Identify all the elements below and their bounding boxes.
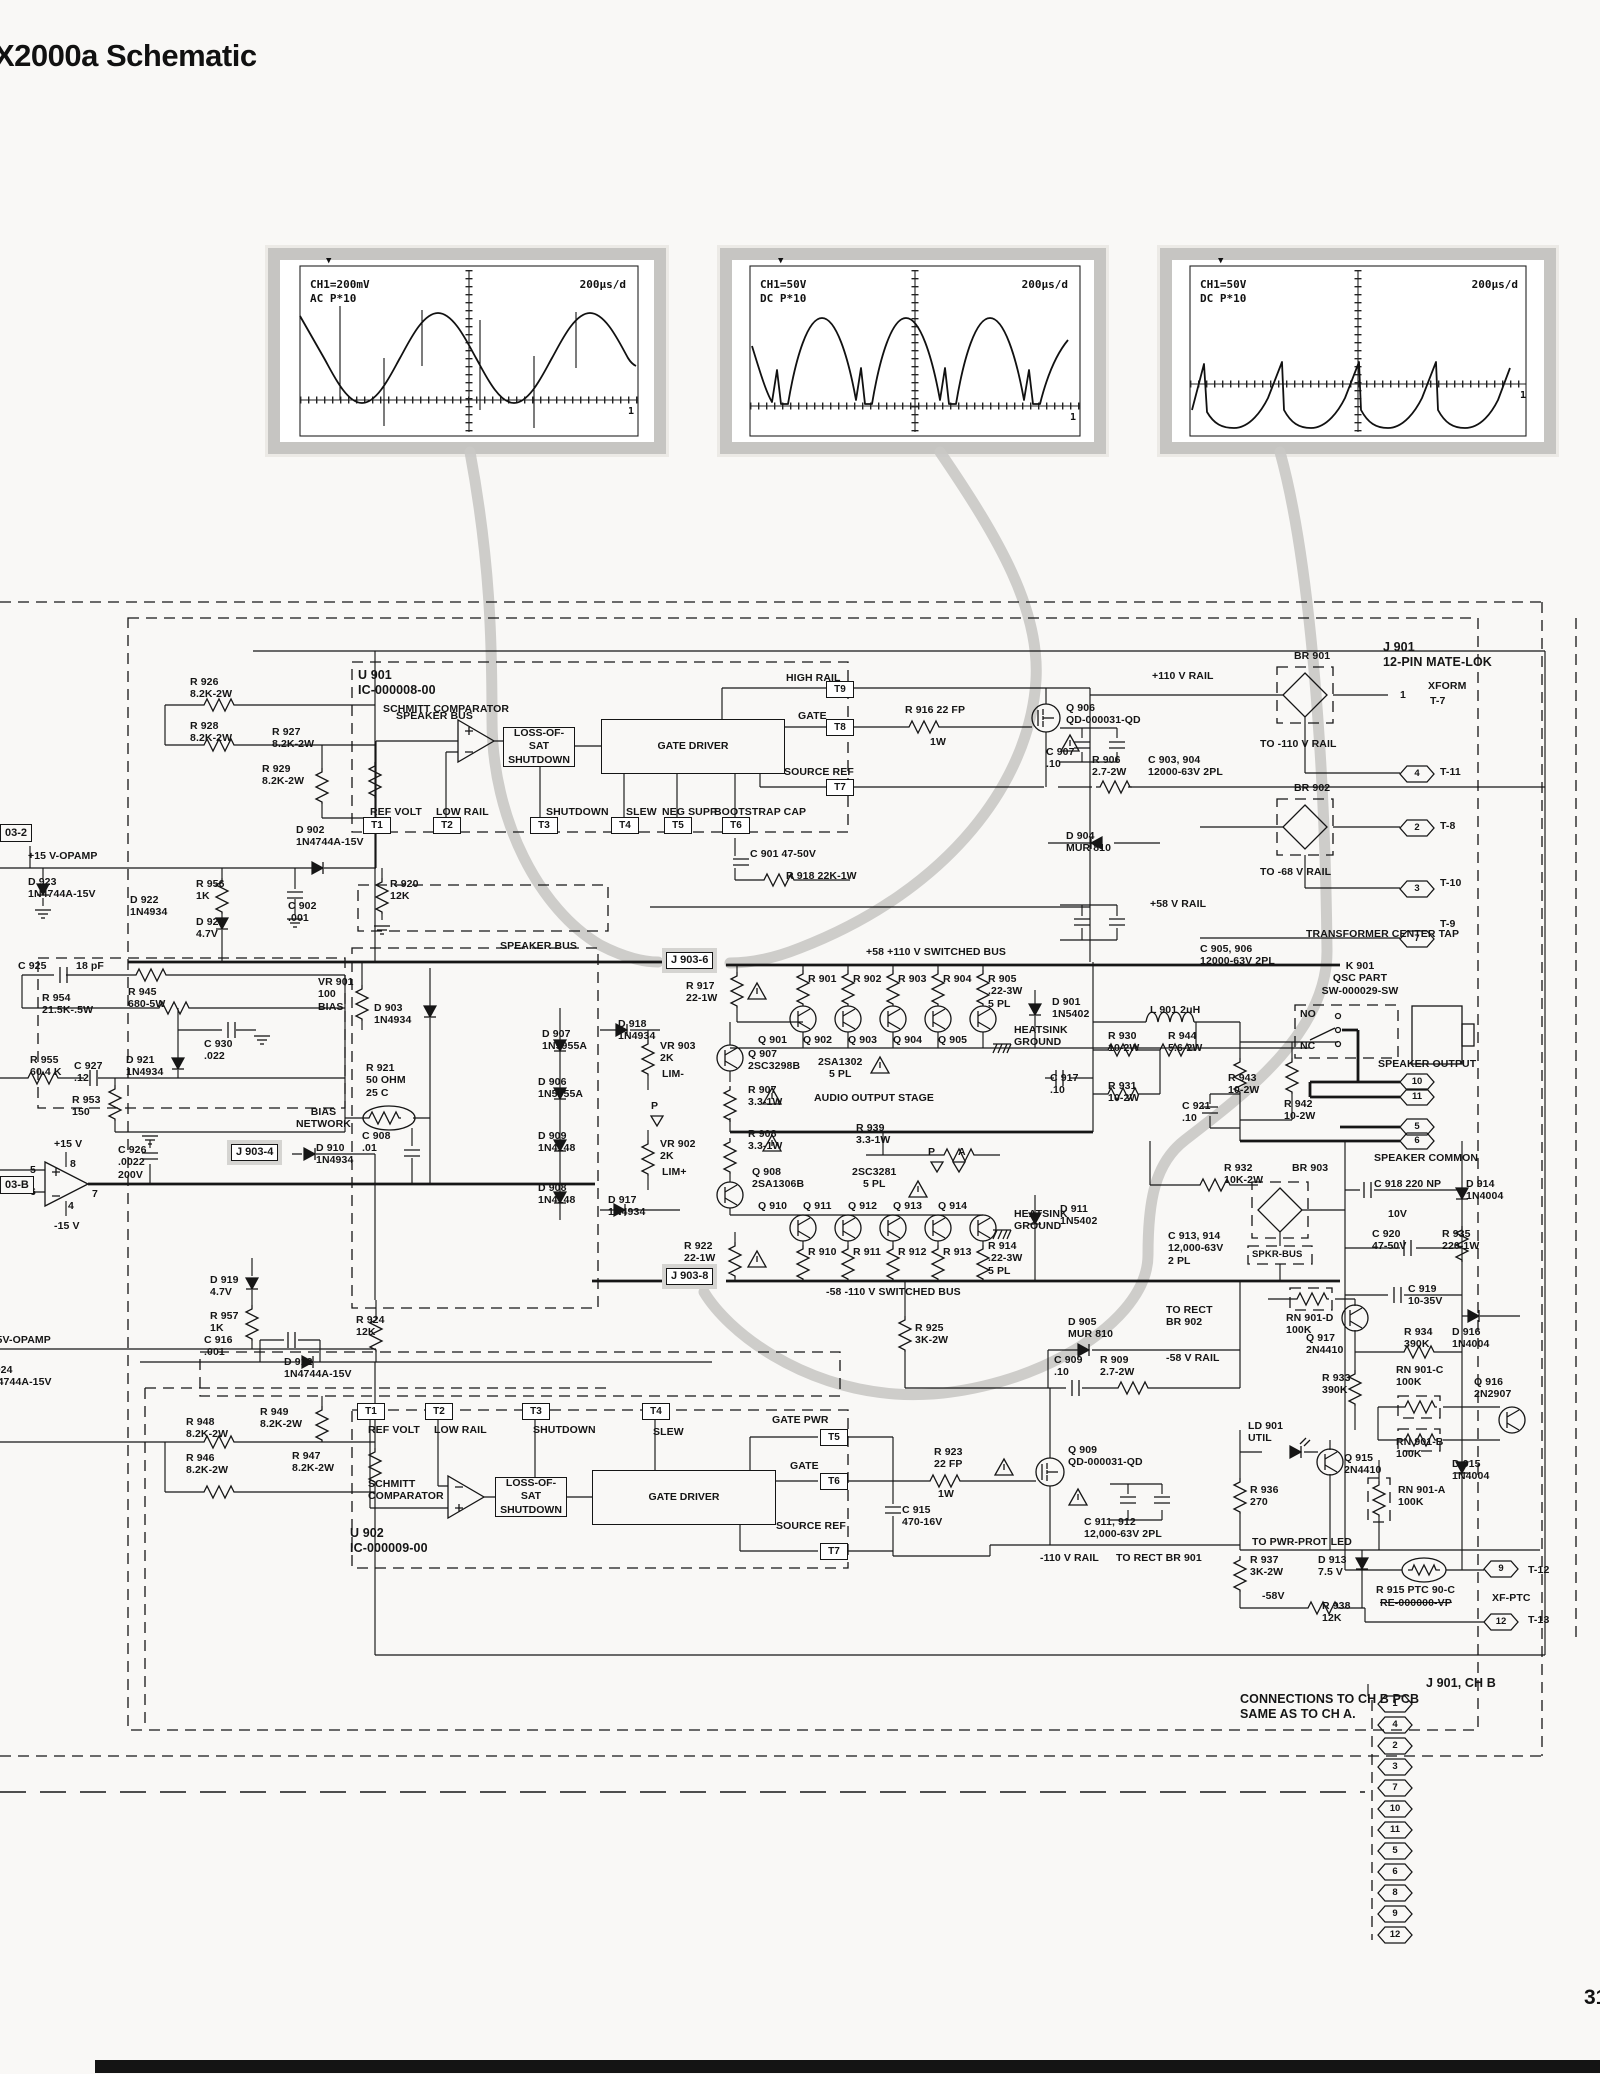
label-c925: C 925: [18, 960, 47, 972]
label-c921: C 921 .10: [1182, 1100, 1211, 1125]
label-r920: R 920 12K: [390, 878, 419, 903]
label-lim-minus: LIM-: [662, 1068, 684, 1080]
label-r954: R 954 21.5K-.5W: [42, 992, 93, 1017]
label-r904: R 904: [943, 973, 972, 985]
label-minus110-rail: -110 V RAIL: [1040, 1552, 1099, 1564]
bottom-bar: [95, 2060, 1600, 2073]
terminal-t4-top: T4: [611, 817, 639, 834]
label-d904: D 904 MUR 810: [1066, 830, 1111, 855]
label-r956: R 956 1K: [196, 878, 225, 903]
label-d917: D 917 1N4934: [608, 1194, 645, 1219]
label-r909: R 909 2.7-2W: [1100, 1354, 1134, 1379]
label-srcref2: SOURCE REF: [776, 1520, 846, 1532]
label-speaker-bus-mid: SPEAKER BUS: [500, 940, 577, 952]
label-r948: R 948 8.2K-2W: [186, 1416, 228, 1441]
label-gate2: GATE: [790, 1460, 819, 1472]
label-r916-wattage: 1W: [930, 736, 946, 748]
label-r936: R 936 270: [1250, 1484, 1279, 1509]
label-d924: D 924 1N4744A-15V: [0, 1364, 52, 1389]
label-refvolt2: REF VOLT: [368, 1424, 420, 1436]
label-d915: D 915 1N4004: [1452, 1458, 1489, 1483]
label-vr902: VR 902 2K: [660, 1138, 696, 1163]
label-r918: R 918 22K-1W: [786, 870, 857, 882]
label-r946: R 946 8.2K-2W: [186, 1452, 228, 1477]
label-c911-912: C 911, 912 12,000-63V 2PL: [1084, 1516, 1162, 1541]
label-r903: R 903: [898, 973, 927, 985]
pin-6: 6: [1400, 1133, 1434, 1149]
terminal-t6-bottom: T6: [820, 1473, 848, 1490]
label-r922: R 922 22-1W: [684, 1240, 715, 1265]
label-d914: D 914 1N4004: [1466, 1178, 1503, 1203]
pin-2: 2: [1400, 820, 1434, 836]
label-r928: R 928 8.2K-2W: [190, 720, 232, 745]
label-d922: D 922 1N4934: [130, 894, 167, 919]
label-speaker-common: SPEAKER COMMON: [1374, 1152, 1478, 1164]
label-c918: C 918 220 NP: [1374, 1178, 1441, 1190]
page-number: 31: [1584, 1986, 1600, 2010]
terminal-t7-top: T7: [826, 779, 854, 796]
label-r942: R 942 10-2W: [1284, 1098, 1315, 1123]
label-c908: C 908 .01: [362, 1130, 391, 1155]
label-r937: R 937 3K-2W: [1250, 1554, 1283, 1579]
label-q913: Q 913: [893, 1200, 922, 1212]
terminal-t7-bottom: T7: [820, 1543, 848, 1560]
label-q903: Q 903: [848, 1034, 877, 1046]
label-r914: R 914 .22-3W 5 PL: [988, 1240, 1022, 1277]
label-d901: D 901 1N5402: [1052, 996, 1089, 1021]
label-speaker-output: SPEAKER OUTPUT: [1378, 1058, 1476, 1070]
label-r925: R 925 3K-2W: [915, 1322, 948, 1347]
label-d912: D 912 1N4744A-15V: [284, 1356, 352, 1381]
label-plus15: +15 V: [54, 1138, 82, 1150]
opamp-pin-7: 7: [92, 1188, 98, 1200]
label-c918-voltage: 10V: [1388, 1208, 1407, 1220]
terminal-t3-top: T3: [530, 817, 558, 834]
label-to110: TO -110 V RAIL: [1260, 738, 1336, 750]
label-2sc3281: 2SC3281 5 PL: [852, 1166, 896, 1191]
label-d905: D 905 MUR 810: [1068, 1316, 1113, 1341]
label-c905-906: C 905, 906 12000-63V 2PL: [1200, 943, 1275, 968]
label-rail58: +58 V RAIL: [1150, 898, 1206, 910]
label-18pf: 18 pF: [76, 960, 104, 972]
label-speaker-bus-top: SPEAKER BUS: [396, 710, 473, 722]
label-gate1: GATE: [798, 710, 827, 722]
label-r935: R 935 220-1W: [1442, 1228, 1479, 1253]
label-r924: R 924 12K: [356, 1314, 385, 1339]
label-heatsink-ground-1: HEATSINK GROUND: [1014, 1024, 1068, 1049]
label-to-pwr-prot-led: TO PWR-PROT LED: [1252, 1536, 1352, 1548]
label-r957: R 957 1K: [210, 1310, 239, 1335]
label-q917: Q 917 2N4410: [1306, 1332, 1343, 1357]
label-spkr-bus: SPKR-BUS: [1252, 1249, 1302, 1260]
label-d910: D 910 1N4934: [316, 1142, 353, 1167]
label-d906: D 906 1N5955A: [538, 1076, 583, 1101]
terminal-t6-top: T6: [722, 817, 750, 834]
label-q912: Q 912: [848, 1200, 877, 1212]
chb-pin-10: 8: [1378, 1885, 1412, 1901]
label-r915-part: RE-000000-VP: [1380, 1597, 1452, 1609]
label-c917: C 917 .10: [1050, 1072, 1079, 1097]
label-bias-network: BIAS NETWORK: [296, 1106, 351, 1131]
pin-3: 3: [1400, 881, 1434, 897]
label-r902: R 902: [853, 973, 882, 985]
label-minus58: -58V: [1262, 1590, 1285, 1602]
label-to-rect-br902: TO RECT BR 902: [1166, 1304, 1213, 1329]
label-r929: R 929 8.2K-2W: [262, 763, 304, 788]
pin-11: 11: [1400, 1089, 1434, 1105]
opamp-pin-4: 4: [68, 1200, 74, 1212]
chb-pin-9: 6: [1378, 1864, 1412, 1880]
label-ground-a: A: [958, 1146, 966, 1158]
label-r912: R 912: [898, 1246, 927, 1258]
connector-j903-4: J 903-4: [231, 1144, 278, 1161]
label-relay-nc: NC: [1300, 1040, 1315, 1052]
pin-4: 4: [1400, 766, 1434, 782]
label-r901: R 901: [808, 973, 837, 985]
terminal-t4-bottom: T4: [642, 1403, 670, 1420]
label-relay-no: NO: [1300, 1008, 1316, 1020]
label-c930: C 930 .022: [204, 1038, 233, 1063]
scope2-pointer-swoosh: [730, 452, 1036, 963]
label-t13x: T-13: [1528, 1614, 1549, 1626]
label-u901: U 901 IC-000008-00: [358, 668, 436, 698]
terminal-t5-top: T5: [664, 817, 692, 834]
label-d908: D 908 1N4148: [538, 1182, 575, 1207]
gate-driver-box-1: GATE DRIVER: [601, 719, 785, 774]
label-r947: R 947 8.2K-2W: [292, 1450, 334, 1475]
label-to-rect-br901: TO RECT BR 901: [1116, 1552, 1202, 1564]
label-c920: C 920 47-50V: [1372, 1228, 1406, 1253]
opamp-pin-8: 8: [70, 1158, 76, 1170]
label-gatepwr: GATE PWR: [772, 1414, 829, 1426]
connector-j903-8: J 903-8: [666, 1268, 713, 1285]
label-br901: BR 901: [1294, 650, 1330, 662]
label-r932: R 932 10K-2W: [1224, 1162, 1263, 1187]
terminal-t2-top: T2: [433, 817, 461, 834]
label-d918: D 918 1N4934: [618, 1018, 655, 1043]
pin-12: 12: [1484, 1614, 1518, 1630]
label-to68: TO -68 V RAIL: [1260, 866, 1331, 878]
gate-driver-box-2: GATE DRIVER: [592, 1470, 776, 1525]
label-r910: R 910: [808, 1246, 837, 1258]
label-d920: D 920 4.7V: [196, 916, 225, 941]
label-d909: D 909 1N4148: [538, 1130, 575, 1155]
label-r931: R 931 10-2W: [1108, 1080, 1139, 1105]
label-r938: R 938 12K: [1322, 1600, 1351, 1625]
label-l901: L 901 2uH: [1150, 1004, 1200, 1016]
label-r916: R 916 22 FP: [905, 704, 965, 716]
label-c913-914: C 913, 914 12,000-63V 2 PL: [1168, 1230, 1223, 1267]
label-q910: Q 910: [758, 1200, 787, 1212]
label-ground-p1: P: [651, 1100, 658, 1112]
label-c926: C 926 .0022 200V: [118, 1144, 147, 1181]
chb-pin-7: 11: [1378, 1822, 1412, 1838]
bridge-br903: [1252, 1182, 1308, 1238]
label-rn901a: RN 901-A 100K: [1398, 1484, 1445, 1509]
label-d913: D 913 7.5 V: [1318, 1554, 1347, 1579]
label-t8x: T-8: [1440, 820, 1455, 832]
label-r945: R 945 680-5W: [128, 986, 165, 1011]
pin-10: 10: [1400, 1074, 1434, 1090]
loss-of-sat-box-1: LOSS-OF-SAT SHUTDOWN: [503, 727, 575, 767]
schematic-artwork: [0, 0, 1600, 2074]
label-center-tap: TRANSFORMER CENTER TAP: [1306, 928, 1459, 940]
label-q901: Q 901: [758, 1034, 787, 1046]
label-r939: R 939 3.3-1W: [856, 1122, 890, 1147]
label-d911: D 911 1N5402: [1060, 1203, 1097, 1228]
label-lim-plus: LIM+: [662, 1166, 687, 1178]
label-r943: R 943 10-2W: [1228, 1072, 1259, 1097]
label-r933: R 933 390K: [1322, 1372, 1351, 1397]
label-d919: D 919 4.7V: [210, 1274, 239, 1299]
label-neg-switched-bus: -58 -110 V SWITCHED BUS: [826, 1286, 961, 1298]
loss-of-sat-box-2: LOSS-OF-SAT SHUTDOWN: [495, 1477, 567, 1517]
label-ground-p2: P: [928, 1146, 935, 1158]
terminal-t1-top: T1: [363, 817, 391, 834]
label-q914: Q 914: [938, 1200, 967, 1212]
chb-pin-8: 5: [1378, 1843, 1412, 1859]
label-m15opamp: -15V-OPAMP: [0, 1334, 51, 1346]
label-k901: K 901 QSC PART SW-000029-SW: [1300, 960, 1420, 997]
label-q906: Q 906 QD-000031-QD: [1066, 702, 1141, 727]
label-q902: Q 902: [803, 1034, 832, 1046]
label-2sa1302: 2SA1302 5 PL: [818, 1056, 862, 1081]
label-minus58-rail: -58 V RAIL: [1166, 1352, 1220, 1364]
chb-pin-11: 9: [1378, 1906, 1412, 1922]
label-rail110: +110 V RAIL: [1152, 670, 1214, 682]
label-schmitt2: SCHMITT COMPARATOR: [368, 1478, 444, 1503]
label-br903: BR 903: [1292, 1162, 1328, 1174]
label-q907: Q 907 2SC3298B: [748, 1048, 800, 1073]
bridge-br901: [1277, 667, 1333, 723]
connector-903-2: 03-2: [0, 824, 32, 842]
label-d903: D 903 1N4934: [374, 1002, 411, 1027]
terminal-t5-bottom: T5: [820, 1429, 848, 1446]
terminal-t9-top: T9: [826, 681, 854, 698]
label-r944: R 944 5.6-2W: [1168, 1030, 1202, 1055]
label-r913: R 913: [943, 1246, 972, 1258]
chb-pin-2: 4: [1378, 1717, 1412, 1733]
label-r907: R 907 3.3-1W: [748, 1084, 782, 1109]
label-r911: R 911: [853, 1246, 881, 1258]
label-pin1: 1: [1400, 689, 1406, 701]
chb-pin-5: 7: [1378, 1780, 1412, 1796]
pin-7: 7: [1400, 931, 1434, 947]
label-t10x: T-10: [1440, 877, 1461, 889]
label-audio-output-stage: AUDIO OUTPUT STAGE: [814, 1092, 934, 1104]
label-r917: R 917 22-1W: [686, 980, 717, 1005]
label-t11x: T-11: [1440, 766, 1461, 778]
label-c919: C 919 10-35V: [1408, 1283, 1442, 1308]
label-r923: R 923 22 FP: [934, 1446, 963, 1471]
chb-pin-6: 10: [1378, 1801, 1412, 1817]
label-q904: Q 904: [893, 1034, 922, 1046]
label-r949: R 949 8.2K-2W: [260, 1406, 302, 1431]
pin-9: 9: [1484, 1561, 1518, 1577]
label-xf-ptc: XF-PTC: [1492, 1592, 1531, 1604]
label-t7x: T-7: [1430, 695, 1445, 707]
label-c909: C 909 .10: [1054, 1354, 1083, 1379]
label-c915: C 915 470-16V: [902, 1504, 942, 1529]
label-minus15: -15 V: [54, 1220, 80, 1232]
label-r953: R 953 150: [72, 1094, 101, 1119]
label-d916: D 916 1N4004: [1452, 1326, 1489, 1351]
label-xform: XFORM: [1428, 680, 1466, 692]
label-r908: R 908 3.3-1W: [748, 1128, 782, 1153]
label-vr903: VR 903 2K: [660, 1040, 696, 1065]
label-r923-wattage: 1W: [938, 1488, 954, 1500]
label-j901: J 901 12-PIN MATE-LOK: [1383, 640, 1492, 670]
label-r905: R 905 .22-3W 5 PL: [988, 973, 1022, 1010]
label-r926: R 926 8.2K-2W: [190, 676, 232, 701]
label-p15opamp: +15 V-OPAMP: [28, 850, 97, 862]
label-u902: U 902 IC-000009-00: [350, 1526, 428, 1556]
label-r906: R 906 2.7-2W: [1092, 754, 1126, 779]
label-slew2: SLEW: [653, 1426, 684, 1438]
label-d921: D 921 1N4934: [126, 1054, 163, 1079]
label-q909: Q 909 QD-000031-QD: [1068, 1444, 1143, 1469]
label-r921: R 921 50 OHM 25 C: [366, 1062, 406, 1099]
label-q916: Q 916 2N2907: [1474, 1376, 1511, 1401]
terminal-t3-bottom: T3: [522, 1403, 550, 1420]
chb-pin-3: 2: [1378, 1738, 1412, 1754]
label-c907: C 907 .10: [1046, 746, 1075, 771]
label-r915: R 915 PTC 90-C: [1376, 1584, 1455, 1596]
label-c901: C 901 47-50V: [750, 848, 816, 860]
label-q915: Q 915 2N4410: [1344, 1452, 1381, 1477]
label-c902: C 902 .001: [288, 900, 317, 925]
terminal-t8-top: T8: [826, 719, 854, 736]
label-r934: R 934 390K: [1404, 1326, 1433, 1351]
label-ld901: LD 901 UTIL: [1248, 1420, 1283, 1445]
label-j901-chb: J 901, CH B: [1426, 1676, 1496, 1691]
label-t12x: T-12: [1528, 1564, 1549, 1576]
label-q908: Q 908 2SA1306B: [752, 1166, 804, 1191]
opamp-pin-5: 5: [30, 1164, 36, 1176]
label-rn901b: RN 901-B 100K: [1396, 1436, 1443, 1461]
label-d902: D 902 1N4744A-15V: [296, 824, 364, 849]
label-r927: R 927 8.2K-2W: [272, 726, 314, 751]
connector-903-b: 03-B: [0, 1176, 34, 1194]
label-shutdown2: SHUTDOWN: [533, 1424, 596, 1436]
label-rn901c: RN 901-C 100K: [1396, 1364, 1443, 1389]
label-q911: Q 911: [803, 1200, 832, 1212]
label-srcref1: SOURCE REF: [784, 766, 854, 778]
label-c903-904: C 903, 904 12000-63V 2PL: [1148, 754, 1223, 779]
chb-pin-1: 1: [1378, 1696, 1412, 1712]
label-r930: R 930 10-2W: [1108, 1030, 1139, 1055]
terminal-t1-bottom: T1: [357, 1403, 385, 1420]
label-c927: C 927 .12: [74, 1060, 103, 1085]
schematic-page: X2000a Schematic CH1=200mV AC P*10 200µs…: [0, 0, 1600, 2074]
label-lowrail2: LOW RAIL: [434, 1424, 487, 1436]
chb-pin-4: 3: [1378, 1759, 1412, 1775]
label-c916: C 916 .001: [204, 1334, 233, 1359]
chb-pin-12: 12: [1378, 1927, 1412, 1943]
label-pos-switched-bus: +58 +110 V SWITCHED BUS: [866, 946, 1006, 958]
label-q905: Q 905: [938, 1034, 967, 1046]
label-br902: BR 902: [1294, 782, 1330, 794]
label-d907: D 907 1N5955A: [542, 1028, 587, 1053]
terminal-t2-bottom: T2: [425, 1403, 453, 1420]
connector-j903-6: J 903-6: [666, 952, 713, 969]
label-r955: R 955 60.4 K: [30, 1054, 62, 1079]
label-d923: D 923 1N4744A-15V: [28, 876, 96, 901]
label-vr901: VR 901 100 BIAS: [318, 976, 354, 1013]
